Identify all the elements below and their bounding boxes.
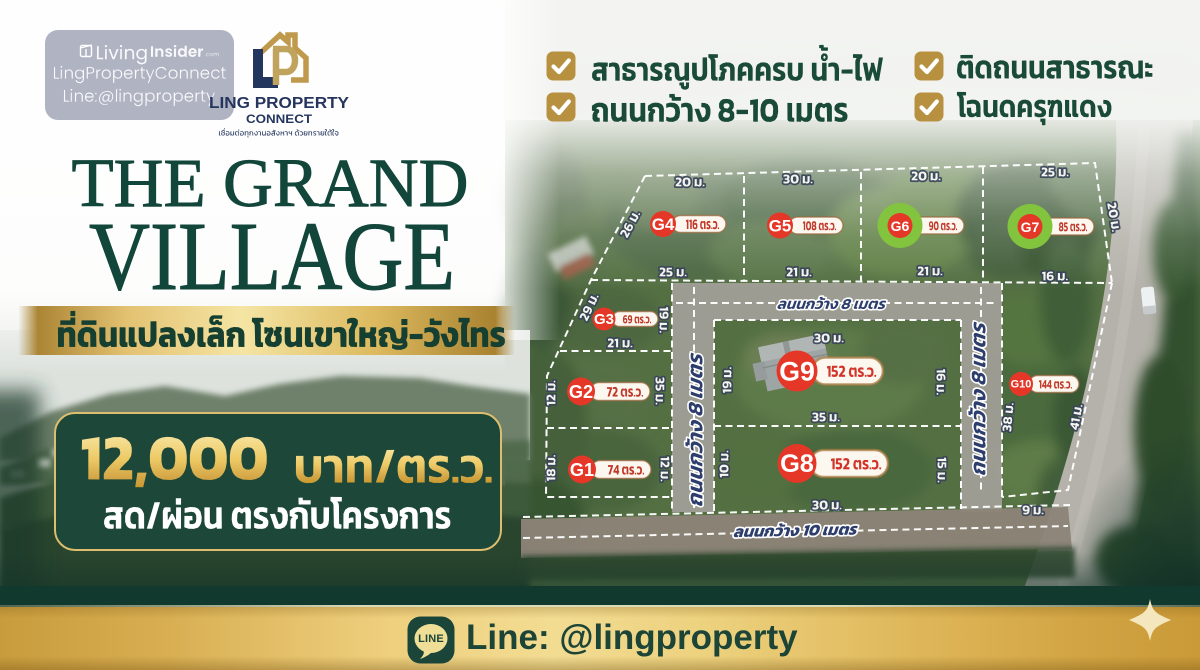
svg-text:G6: G6 [891, 218, 910, 234]
svg-text:G7: G7 [1021, 219, 1040, 235]
svg-text:LINE: LINE [418, 633, 444, 645]
svg-text:LING PROPERTY: LING PROPERTY [209, 95, 349, 112]
svg-text:VILLAGE: VILLAGE [89, 203, 455, 305]
svg-text:G5: G5 [769, 217, 792, 236]
svg-text:G2: G2 [569, 382, 593, 402]
svg-text:G4: G4 [652, 215, 675, 234]
svg-text:G8: G8 [780, 450, 814, 478]
svg-text:CONNECT: CONNECT [246, 112, 313, 126]
svg-text:G10: G10 [1011, 379, 1032, 391]
svg-text:G3: G3 [594, 311, 614, 328]
svg-text:G1: G1 [570, 460, 594, 480]
svg-text:G9: G9 [779, 357, 815, 387]
